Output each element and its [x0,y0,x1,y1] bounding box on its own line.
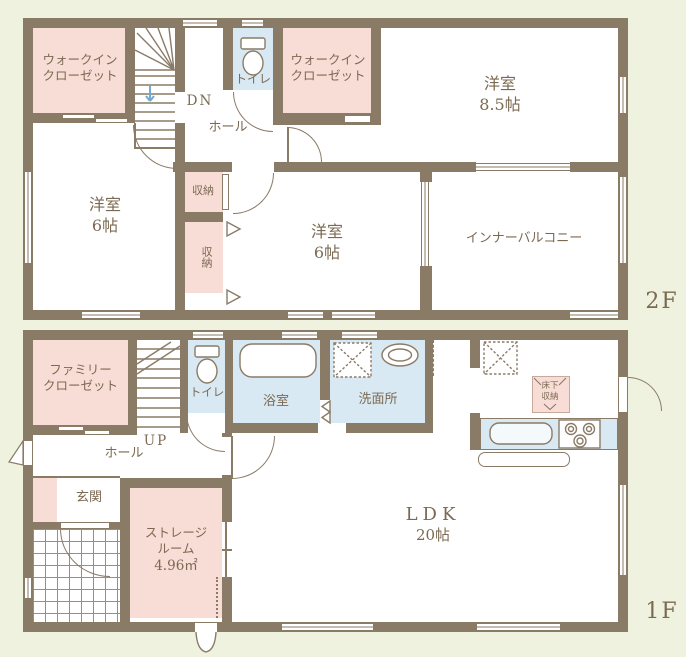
floor-plan: ウォークインクローゼット ウォークインクローゼット トイレ DN ホール 洋室8… [0,0,686,657]
floor1-ldk-label: LDK 20帖 [388,503,478,546]
washing-machine-icon [334,343,371,377]
toilet-1f-icon [195,346,219,383]
storage-exterior-door-icon [196,632,216,652]
toilet-2f-icon [241,38,265,75]
floor1-storage-label: ストレージ ルーム 4.96㎡ [130,525,222,575]
underfloor-storage-label: 床下収納 [534,381,566,404]
bathtub-icon [240,344,316,377]
vanity-sink-icon [382,344,418,366]
floor1-hall-label: ホール [94,446,154,463]
stove-icon [559,420,600,448]
stairs-1f-icon [137,342,180,427]
floor1-toilet-label: トイレ [186,385,228,400]
refrigerator-space-icon [484,342,517,374]
bath-folding-door-icon [320,400,330,423]
floor1-genkan-label: 玄関 [62,490,116,507]
fixtures-layer [0,0,686,657]
kitchen-sink-icon [490,423,552,444]
front-door-icon [9,441,23,465]
floor1-washroom-label: 洗面所 [335,392,421,409]
stairs-2f-icon [135,28,175,139]
closet-bifold-markers [227,222,240,304]
floor1-family-closet-label: ファミリークローゼット [33,362,128,395]
floor1-floor-label: 1F [638,598,686,627]
floor1-bath-label: 浴室 [248,394,304,411]
